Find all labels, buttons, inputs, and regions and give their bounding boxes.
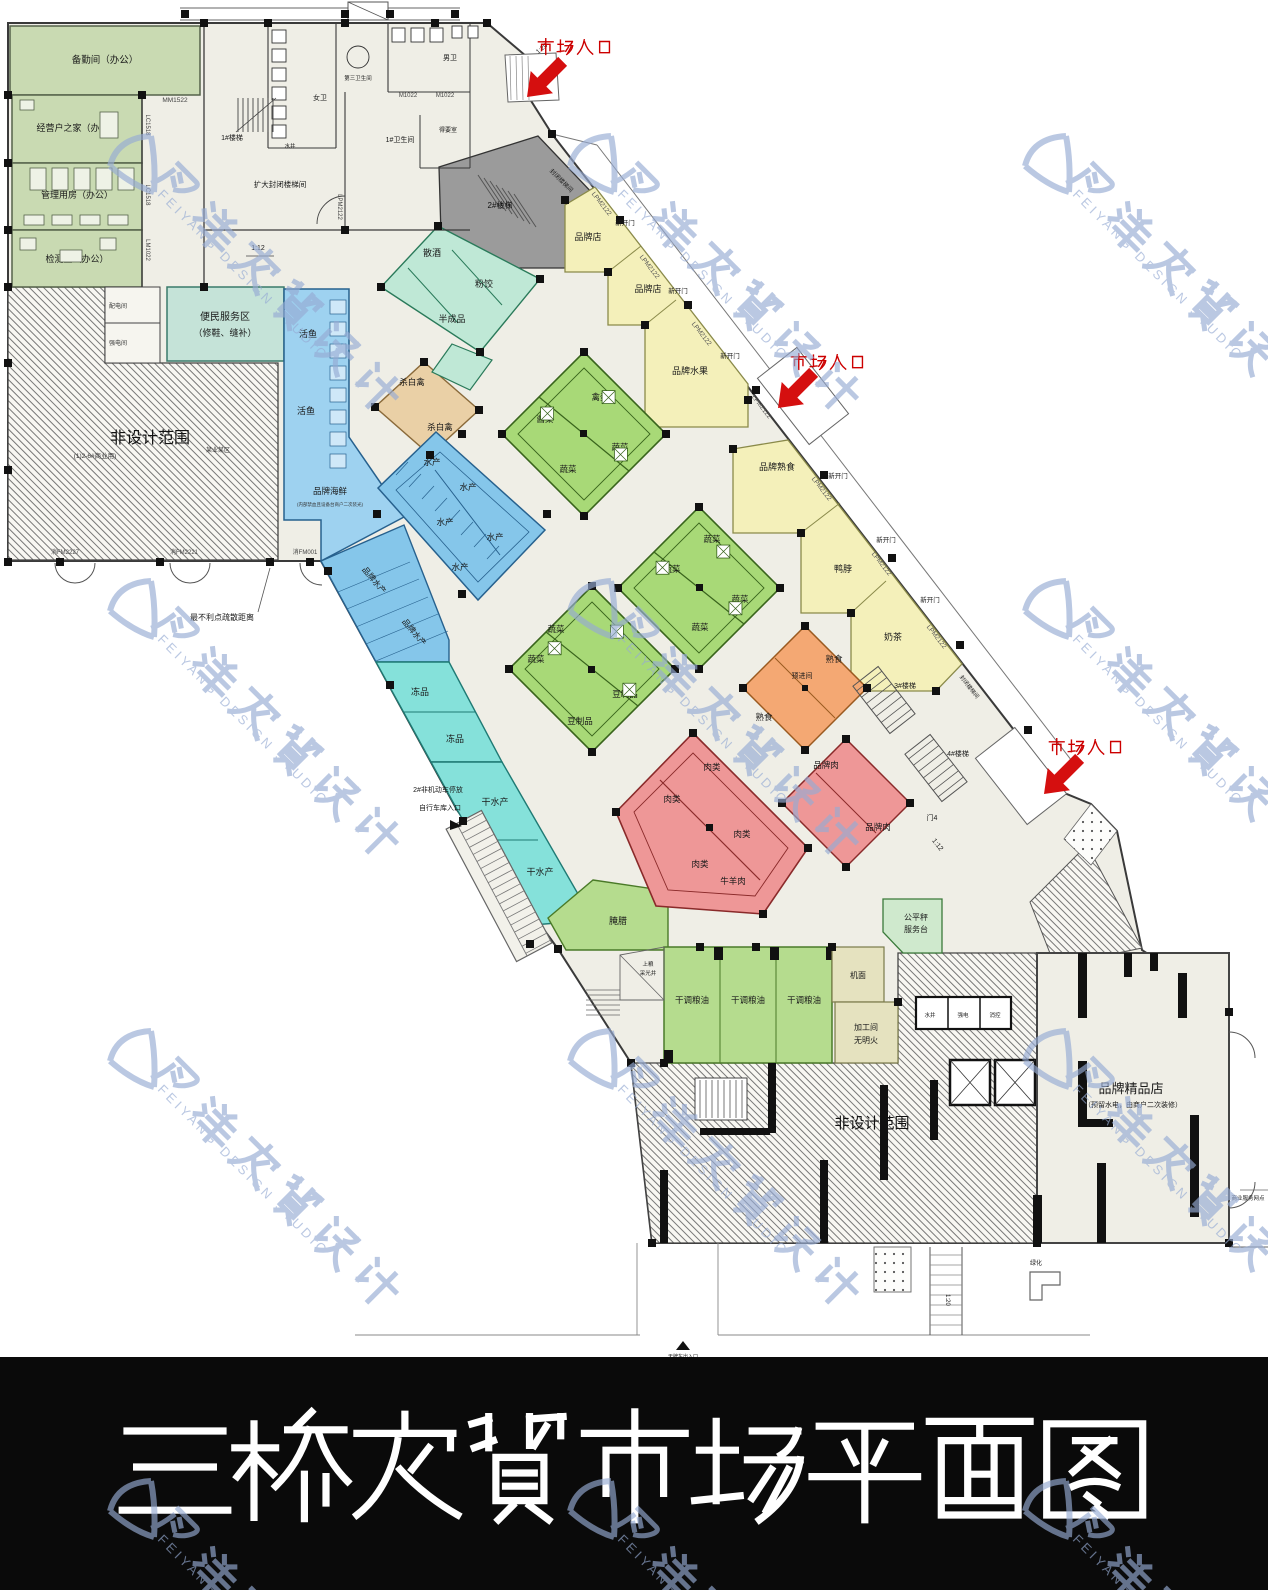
svg-text:服务台: 服务台 <box>904 924 928 934</box>
svg-text:奶茶: 奶茶 <box>884 631 902 642</box>
svg-text:冻品: 冻品 <box>446 733 464 744</box>
svg-text:强电间: 强电间 <box>109 339 127 347</box>
svg-text:消FM2221: 消FM2221 <box>170 548 199 556</box>
svg-text:配电间: 配电间 <box>109 302 127 310</box>
svg-text:鸭脖: 鸭脖 <box>834 563 852 574</box>
svg-text:(内部禁血且设备台商户二次装光): (内部禁血且设备台商户二次装光) <box>297 501 363 508</box>
svg-text:加工间: 加工间 <box>854 1022 878 1032</box>
svg-text:女卫: 女卫 <box>313 93 327 102</box>
svg-text:水产: 水产 <box>436 517 453 527</box>
svg-text:品牌肉: 品牌肉 <box>865 822 891 832</box>
svg-text:非设计范围: 非设计范围 <box>834 1115 909 1132</box>
svg-text:牛羊肉: 牛羊肉 <box>720 876 746 886</box>
svg-text:干水产: 干水产 <box>526 866 553 877</box>
svg-text:无明火: 无明火 <box>854 1036 878 1045</box>
svg-text:LPM2122: LPM2122 <box>336 194 342 220</box>
svg-text:1#楼梯: 1#楼梯 <box>221 133 243 142</box>
svg-text:熟食: 熟食 <box>755 712 773 722</box>
svg-text:非设计范围: 非设计范围 <box>110 429 190 447</box>
svg-text:第三卫生间: 第三卫生间 <box>344 74 372 82</box>
svg-text:上粮: 上粮 <box>642 960 654 968</box>
svg-text:水井: 水井 <box>924 1011 936 1019</box>
svg-text:消FM2227: 消FM2227 <box>51 548 80 556</box>
svg-text:强电: 强电 <box>957 1011 969 1019</box>
svg-text:4#楼梯: 4#楼梯 <box>947 749 969 758</box>
svg-text:公平秤: 公平秤 <box>904 912 928 922</box>
svg-text:机面: 机面 <box>850 970 866 980</box>
svg-text:蔬菜: 蔬菜 <box>691 622 709 632</box>
svg-text:水井: 水井 <box>284 142 296 150</box>
svg-text:男卫: 男卫 <box>443 54 457 62</box>
svg-text:肉类: 肉类 <box>691 859 709 869</box>
svg-text:品牌水果: 品牌水果 <box>672 365 708 376</box>
svg-text:门4: 门4 <box>927 813 938 822</box>
svg-text:MM1522: MM1522 <box>162 97 188 104</box>
svg-text:2#楼梯: 2#楼梯 <box>488 200 513 210</box>
svg-text:M1022: M1022 <box>399 93 418 99</box>
svg-text:扩大封闭楼梯间: 扩大封闭楼梯间 <box>254 179 307 189</box>
svg-text:冻品: 冻品 <box>411 686 429 697</box>
svg-text:肉类: 肉类 <box>663 794 681 804</box>
svg-text:水产: 水产 <box>486 532 503 542</box>
svg-text:散酒: 散酒 <box>423 247 441 258</box>
svg-text:采光井: 采光井 <box>640 969 657 977</box>
svg-text:肉类: 肉类 <box>703 762 721 772</box>
svg-text:新开门: 新开门 <box>920 595 940 604</box>
svg-text:某业某区: 某业某区 <box>206 446 230 454</box>
svg-text:蔬菜: 蔬菜 <box>527 654 545 664</box>
svg-text:得要室: 得要室 <box>439 126 457 134</box>
svg-text:消控: 消控 <box>989 1011 1001 1019</box>
svg-text:半成品: 半成品 <box>438 313 465 324</box>
svg-text:豆制品: 豆制品 <box>567 716 593 726</box>
svg-text:预进间: 预进间 <box>792 671 813 680</box>
svg-text:水产: 水产 <box>451 562 468 572</box>
svg-text:蔬菜: 蔬菜 <box>547 624 565 634</box>
svg-text:备勤间（办公）: 备勤间（办公） <box>72 54 139 66</box>
svg-text:水产: 水产 <box>459 482 476 492</box>
svg-text:新开门: 新开门 <box>668 286 688 295</box>
svg-text:绿化: 绿化 <box>1030 1259 1042 1267</box>
svg-text:蔬菜: 蔬菜 <box>559 464 577 474</box>
svg-text:最不利点疏散距离: 最不利点疏散距离 <box>190 612 254 622</box>
svg-text:品牌店: 品牌店 <box>574 231 601 242</box>
svg-text:粉饺: 粉饺 <box>475 278 493 289</box>
svg-text:便民服务区: 便民服务区 <box>200 310 250 323</box>
svg-text:新开门: 新开门 <box>828 471 848 480</box>
svg-text:肉类: 肉类 <box>733 829 751 839</box>
svg-text:2#非机动车停放: 2#非机动车停放 <box>413 785 463 794</box>
svg-text:3#楼梯: 3#楼梯 <box>894 681 916 690</box>
svg-text:新开门: 新开门 <box>615 218 635 227</box>
svg-text:LC1518: LC1518 <box>144 114 150 136</box>
svg-text:品牌肉: 品牌肉 <box>813 760 839 770</box>
svg-text:熟食: 熟食 <box>825 654 843 664</box>
svg-text:LM1022: LM1022 <box>144 239 150 261</box>
svg-text:(1)2-6#商业用): (1)2-6#商业用) <box>74 451 117 460</box>
svg-text:干水产: 干水产 <box>481 796 508 807</box>
svg-text:（修鞋、缝补）: （修鞋、缝补） <box>193 327 256 338</box>
svg-text:1#卫生间: 1#卫生间 <box>386 135 415 144</box>
svg-text:新开门: 新开门 <box>876 535 896 544</box>
svg-text:管理用房（办公）: 管理用房（办公） <box>41 189 113 200</box>
svg-text:腌腊: 腌腊 <box>609 915 627 926</box>
svg-text:新开门: 新开门 <box>720 351 740 360</box>
svg-text:干调粮油: 干调粮油 <box>731 995 765 1005</box>
svg-text:品牌熟食: 品牌熟食 <box>759 461 795 472</box>
svg-text:M1022: M1022 <box>436 93 455 99</box>
svg-text:1:20: 1:20 <box>944 1294 950 1306</box>
svg-text:品牌海鲜: 品牌海鲜 <box>313 486 348 496</box>
svg-text:干调粮油: 干调粮油 <box>787 995 821 1005</box>
svg-text:杀白禽: 杀白禽 <box>427 422 453 432</box>
svg-text:自行车库入口: 自行车库入口 <box>419 803 461 812</box>
svg-text:杀白禽: 杀白禽 <box>399 377 425 387</box>
svg-text:蔬菜: 蔬菜 <box>703 534 721 544</box>
svg-text:消FM001: 消FM001 <box>293 548 318 556</box>
svg-text:干调粮油: 干调粮油 <box>675 995 709 1005</box>
svg-text:品牌店: 品牌店 <box>634 283 661 294</box>
svg-text:活鱼: 活鱼 <box>297 405 315 416</box>
